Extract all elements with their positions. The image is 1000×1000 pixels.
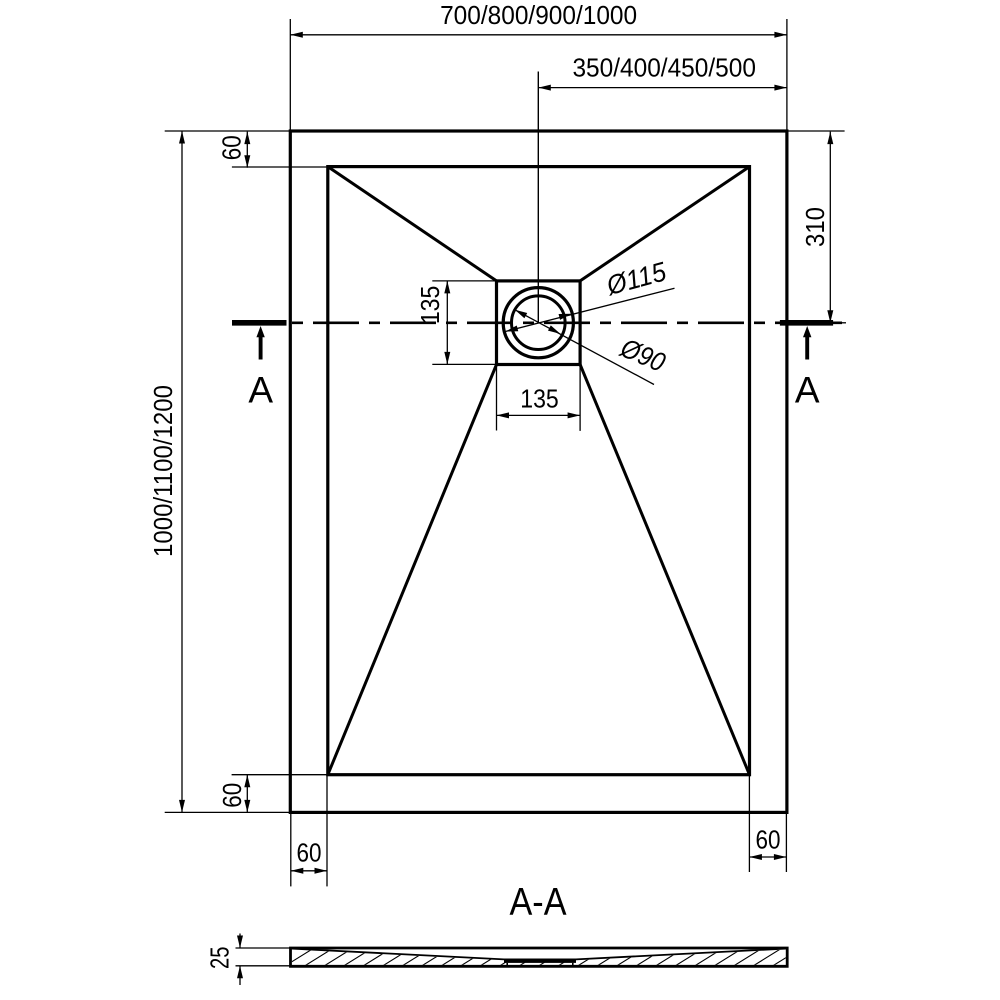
svg-text:60: 60 — [217, 783, 247, 808]
svg-text:A: A — [248, 370, 273, 411]
svg-text:135: 135 — [415, 286, 445, 325]
svg-text:60: 60 — [756, 825, 781, 855]
svg-text:A-A: A-A — [510, 881, 567, 924]
svg-text:1000/1100/1200: 1000/1100/1200 — [148, 385, 178, 557]
svg-text:25: 25 — [205, 947, 235, 970]
svg-text:700/800/900/1000: 700/800/900/1000 — [440, 0, 637, 30]
svg-text:60: 60 — [217, 135, 247, 160]
svg-text:310: 310 — [800, 207, 830, 247]
svg-text:135: 135 — [520, 383, 559, 413]
svg-text:A: A — [795, 370, 820, 411]
svg-text:350/400/450/500: 350/400/450/500 — [572, 53, 756, 83]
svg-text:60: 60 — [297, 838, 322, 868]
